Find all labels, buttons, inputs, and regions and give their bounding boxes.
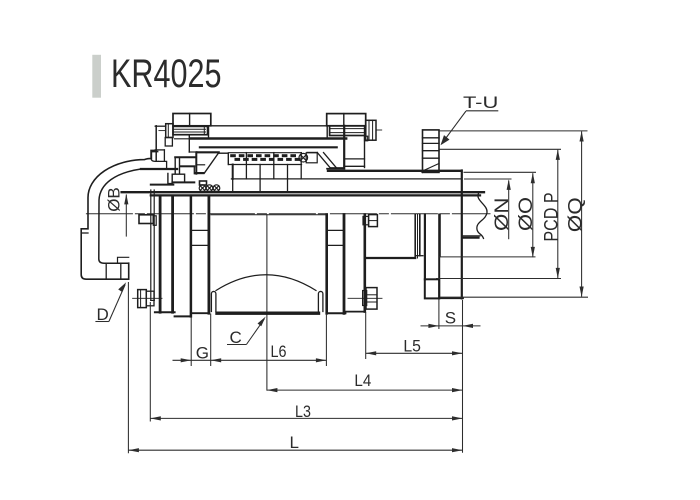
svg-text:PCD P: PCD P <box>542 192 563 241</box>
svg-text:S: S <box>445 309 456 328</box>
svg-text:KR4025: KR4025 <box>111 52 222 96</box>
svg-text:L: L <box>290 433 299 452</box>
svg-text:ØQ: ØQ <box>565 197 586 232</box>
svg-text:G: G <box>196 343 209 362</box>
svg-text:L5: L5 <box>403 336 421 355</box>
svg-text:L4: L4 <box>354 371 371 390</box>
svg-text:C: C <box>230 328 242 347</box>
svg-text:D: D <box>97 305 109 324</box>
svg-text:ØB: ØB <box>104 187 123 212</box>
svg-text:L3: L3 <box>295 402 311 421</box>
svg-text:T-U: T-U <box>463 93 498 112</box>
svg-text:ØO: ØO <box>516 197 537 231</box>
svg-text:ØN: ØN <box>492 198 513 232</box>
svg-text:L6: L6 <box>271 342 287 361</box>
